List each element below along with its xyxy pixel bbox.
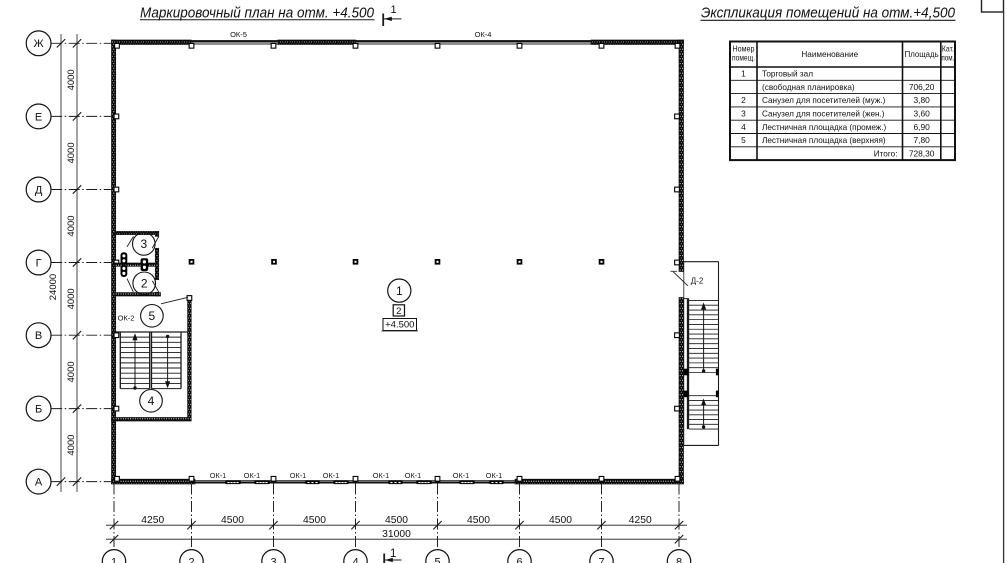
svg-text:+4.500: +4.500 — [385, 320, 414, 331]
svg-text:ОК-1: ОК-1 — [405, 471, 421, 480]
svg-text:4000: 4000 — [66, 435, 77, 456]
svg-text:4500: 4500 — [467, 515, 490, 526]
svg-text:1: 1 — [390, 4, 396, 16]
svg-text:3: 3 — [270, 556, 276, 563]
svg-text:Д-2: Д-2 — [691, 277, 704, 286]
svg-text:3,60: 3,60 — [913, 109, 930, 119]
svg-text:Санузел для посетителей (жен.): Санузел для посетителей (жен.) — [762, 110, 885, 119]
svg-text:Площадь: Площадь — [905, 50, 939, 59]
svg-text:4000: 4000 — [66, 361, 77, 382]
svg-text:Б: Б — [35, 404, 42, 416]
svg-text:5: 5 — [149, 309, 156, 323]
svg-text:4: 4 — [741, 122, 746, 132]
svg-text:ОК-1: ОК-1 — [323, 471, 339, 480]
svg-text:4000: 4000 — [66, 142, 77, 163]
svg-text:ОК-2: ОК-2 — [118, 313, 135, 322]
svg-text:4000: 4000 — [66, 215, 77, 236]
svg-text:Ж: Ж — [34, 38, 44, 50]
svg-text:Е: Е — [35, 111, 42, 123]
svg-text:А: А — [35, 477, 43, 489]
svg-text:728,30: 728,30 — [909, 148, 935, 158]
svg-text:4250: 4250 — [629, 515, 652, 526]
svg-text:5: 5 — [741, 135, 746, 145]
svg-text:6: 6 — [516, 556, 522, 563]
svg-text:(свободная планировка): (свободная планировка) — [762, 83, 855, 92]
svg-text:31000: 31000 — [382, 529, 411, 540]
svg-text:1: 1 — [390, 548, 396, 560]
svg-text:3: 3 — [741, 109, 746, 119]
svg-text:Торговый зал: Торговый зал — [762, 70, 813, 79]
svg-text:Номер: Номер — [733, 45, 755, 54]
svg-text:ОК-1: ОК-1 — [290, 471, 306, 480]
svg-text:В: В — [35, 330, 42, 342]
svg-text:1: 1 — [741, 69, 746, 79]
svg-text:ОК-5: ОК-5 — [230, 30, 247, 39]
svg-text:ОК-1: ОК-1 — [373, 471, 389, 480]
svg-text:24000: 24000 — [48, 274, 59, 300]
svg-text:ОК-1: ОК-1 — [244, 471, 260, 480]
svg-text:2: 2 — [396, 306, 401, 317]
svg-text:7: 7 — [598, 556, 604, 563]
svg-text:2: 2 — [741, 95, 746, 105]
svg-text:7,80: 7,80 — [913, 135, 930, 145]
svg-text:ОК-4: ОК-4 — [475, 30, 492, 39]
svg-text:4: 4 — [352, 556, 358, 563]
svg-text:Лестничная площадка (верхняя): Лестничная площадка (верхняя) — [762, 136, 886, 145]
svg-text:4500: 4500 — [549, 515, 572, 526]
svg-text:Маркировочный план на отм. +4.: Маркировочный план на отм. +4.500 — [140, 5, 375, 22]
svg-text:Экспликация помещений на отм.+: Экспликация помещений на отм.+4,500 — [701, 5, 956, 22]
svg-text:4000: 4000 — [66, 288, 77, 309]
svg-text:4000: 4000 — [66, 69, 77, 90]
svg-text:706,20: 706,20 — [909, 82, 935, 92]
svg-text:ОК-1: ОК-1 — [453, 471, 469, 480]
svg-text:8: 8 — [676, 556, 682, 563]
svg-text:Лестничная площадка (промеж.): Лестничная площадка (промеж.) — [762, 123, 887, 132]
svg-text:Наименование: Наименование — [801, 50, 858, 59]
svg-text:Д: Д — [35, 184, 43, 196]
svg-text:помещ.: помещ. — [732, 54, 755, 63]
svg-text:1: 1 — [111, 556, 117, 563]
svg-text:4250: 4250 — [141, 515, 164, 526]
svg-text:ОК-1: ОК-1 — [210, 471, 226, 480]
svg-text:5: 5 — [434, 556, 440, 563]
svg-text:Г: Г — [36, 257, 42, 269]
svg-text:Итого:: Итого: — [874, 149, 898, 158]
svg-text:2: 2 — [188, 556, 194, 563]
svg-text:Кат.: Кат. — [942, 45, 954, 54]
svg-text:1: 1 — [396, 284, 403, 298]
svg-text:2: 2 — [141, 277, 148, 291]
svg-text:3,80: 3,80 — [913, 95, 930, 105]
svg-text:6,90: 6,90 — [913, 122, 930, 132]
svg-text:4: 4 — [148, 394, 155, 408]
svg-text:пом.: пом. — [941, 54, 954, 63]
svg-text:3: 3 — [140, 237, 147, 251]
svg-text:4500: 4500 — [385, 515, 408, 526]
svg-text:4500: 4500 — [221, 515, 244, 526]
svg-text:4500: 4500 — [303, 515, 326, 526]
svg-text:Санузел для посетителей (муж.): Санузел для посетителей (муж.) — [762, 96, 886, 105]
svg-text:ОК-1: ОК-1 — [486, 471, 502, 480]
